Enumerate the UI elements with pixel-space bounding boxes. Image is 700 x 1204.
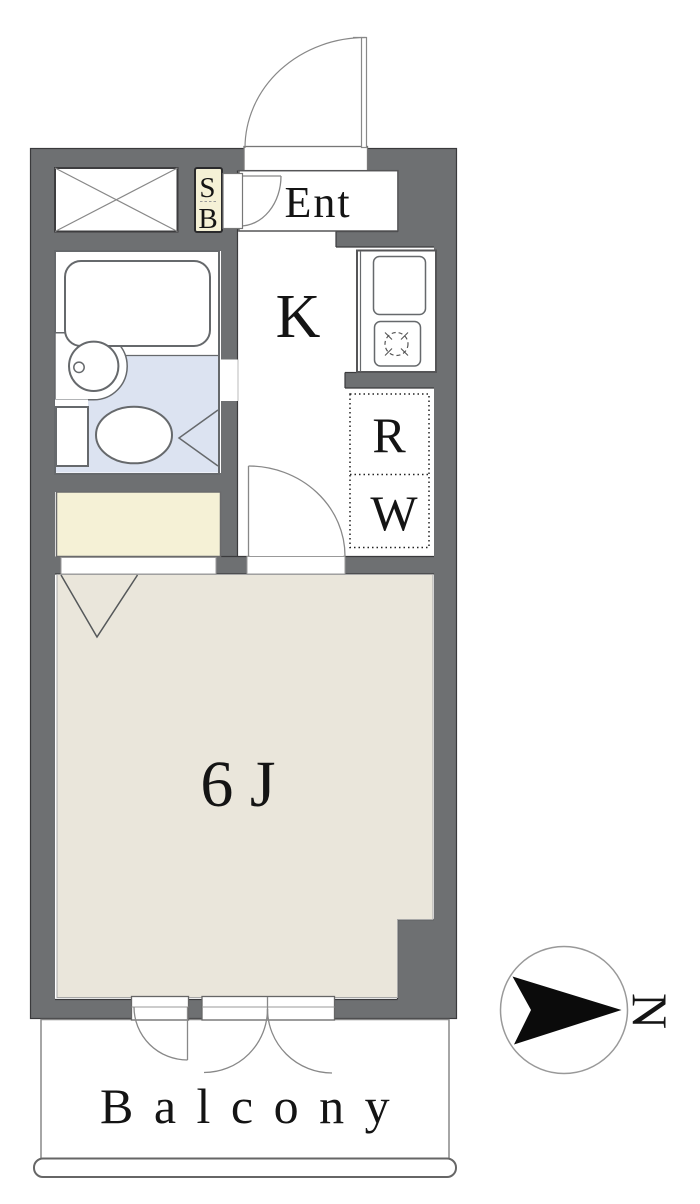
- svg-text:B: B: [198, 203, 217, 235]
- svg-text:N: N: [622, 993, 678, 1029]
- svg-text:S: S: [199, 172, 215, 204]
- svg-text:W: W: [370, 485, 418, 541]
- svg-text:6 J: 6 J: [200, 748, 275, 821]
- svg-text:R: R: [372, 407, 406, 463]
- svg-text:Ent: Ent: [284, 178, 351, 227]
- svg-text:Balcony: Balcony: [100, 1078, 410, 1134]
- svg-text:K: K: [276, 283, 321, 351]
